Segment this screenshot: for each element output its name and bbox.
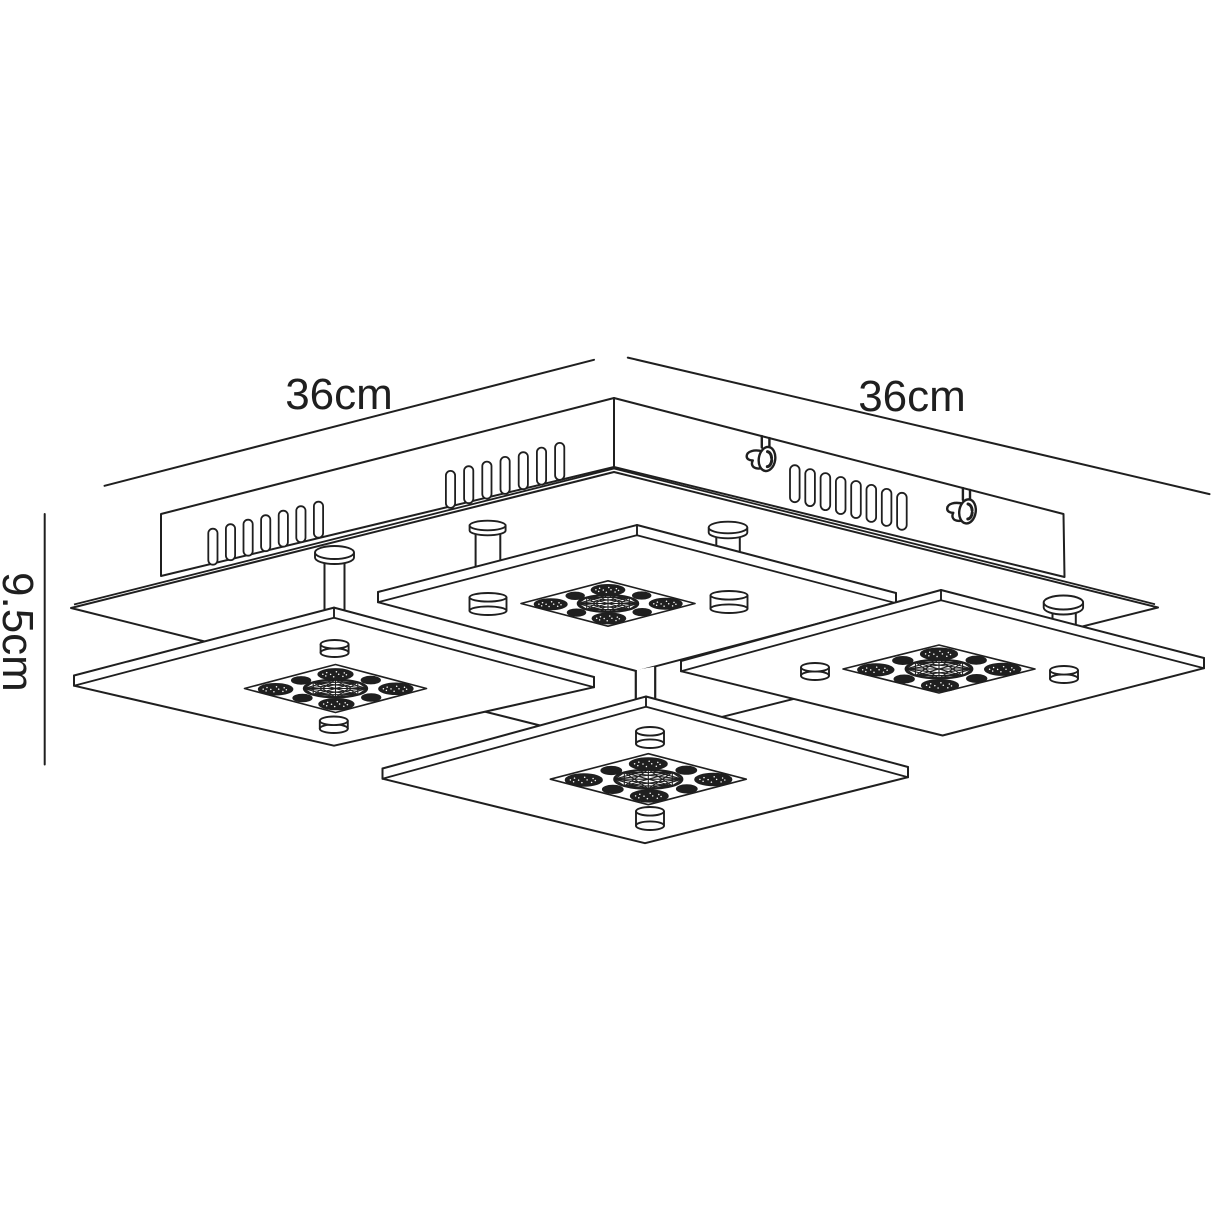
svg-text:36cm: 36cm: [285, 370, 393, 419]
svg-text:9.5cm: 9.5cm: [0, 572, 42, 692]
svg-text:36cm: 36cm: [858, 372, 966, 421]
